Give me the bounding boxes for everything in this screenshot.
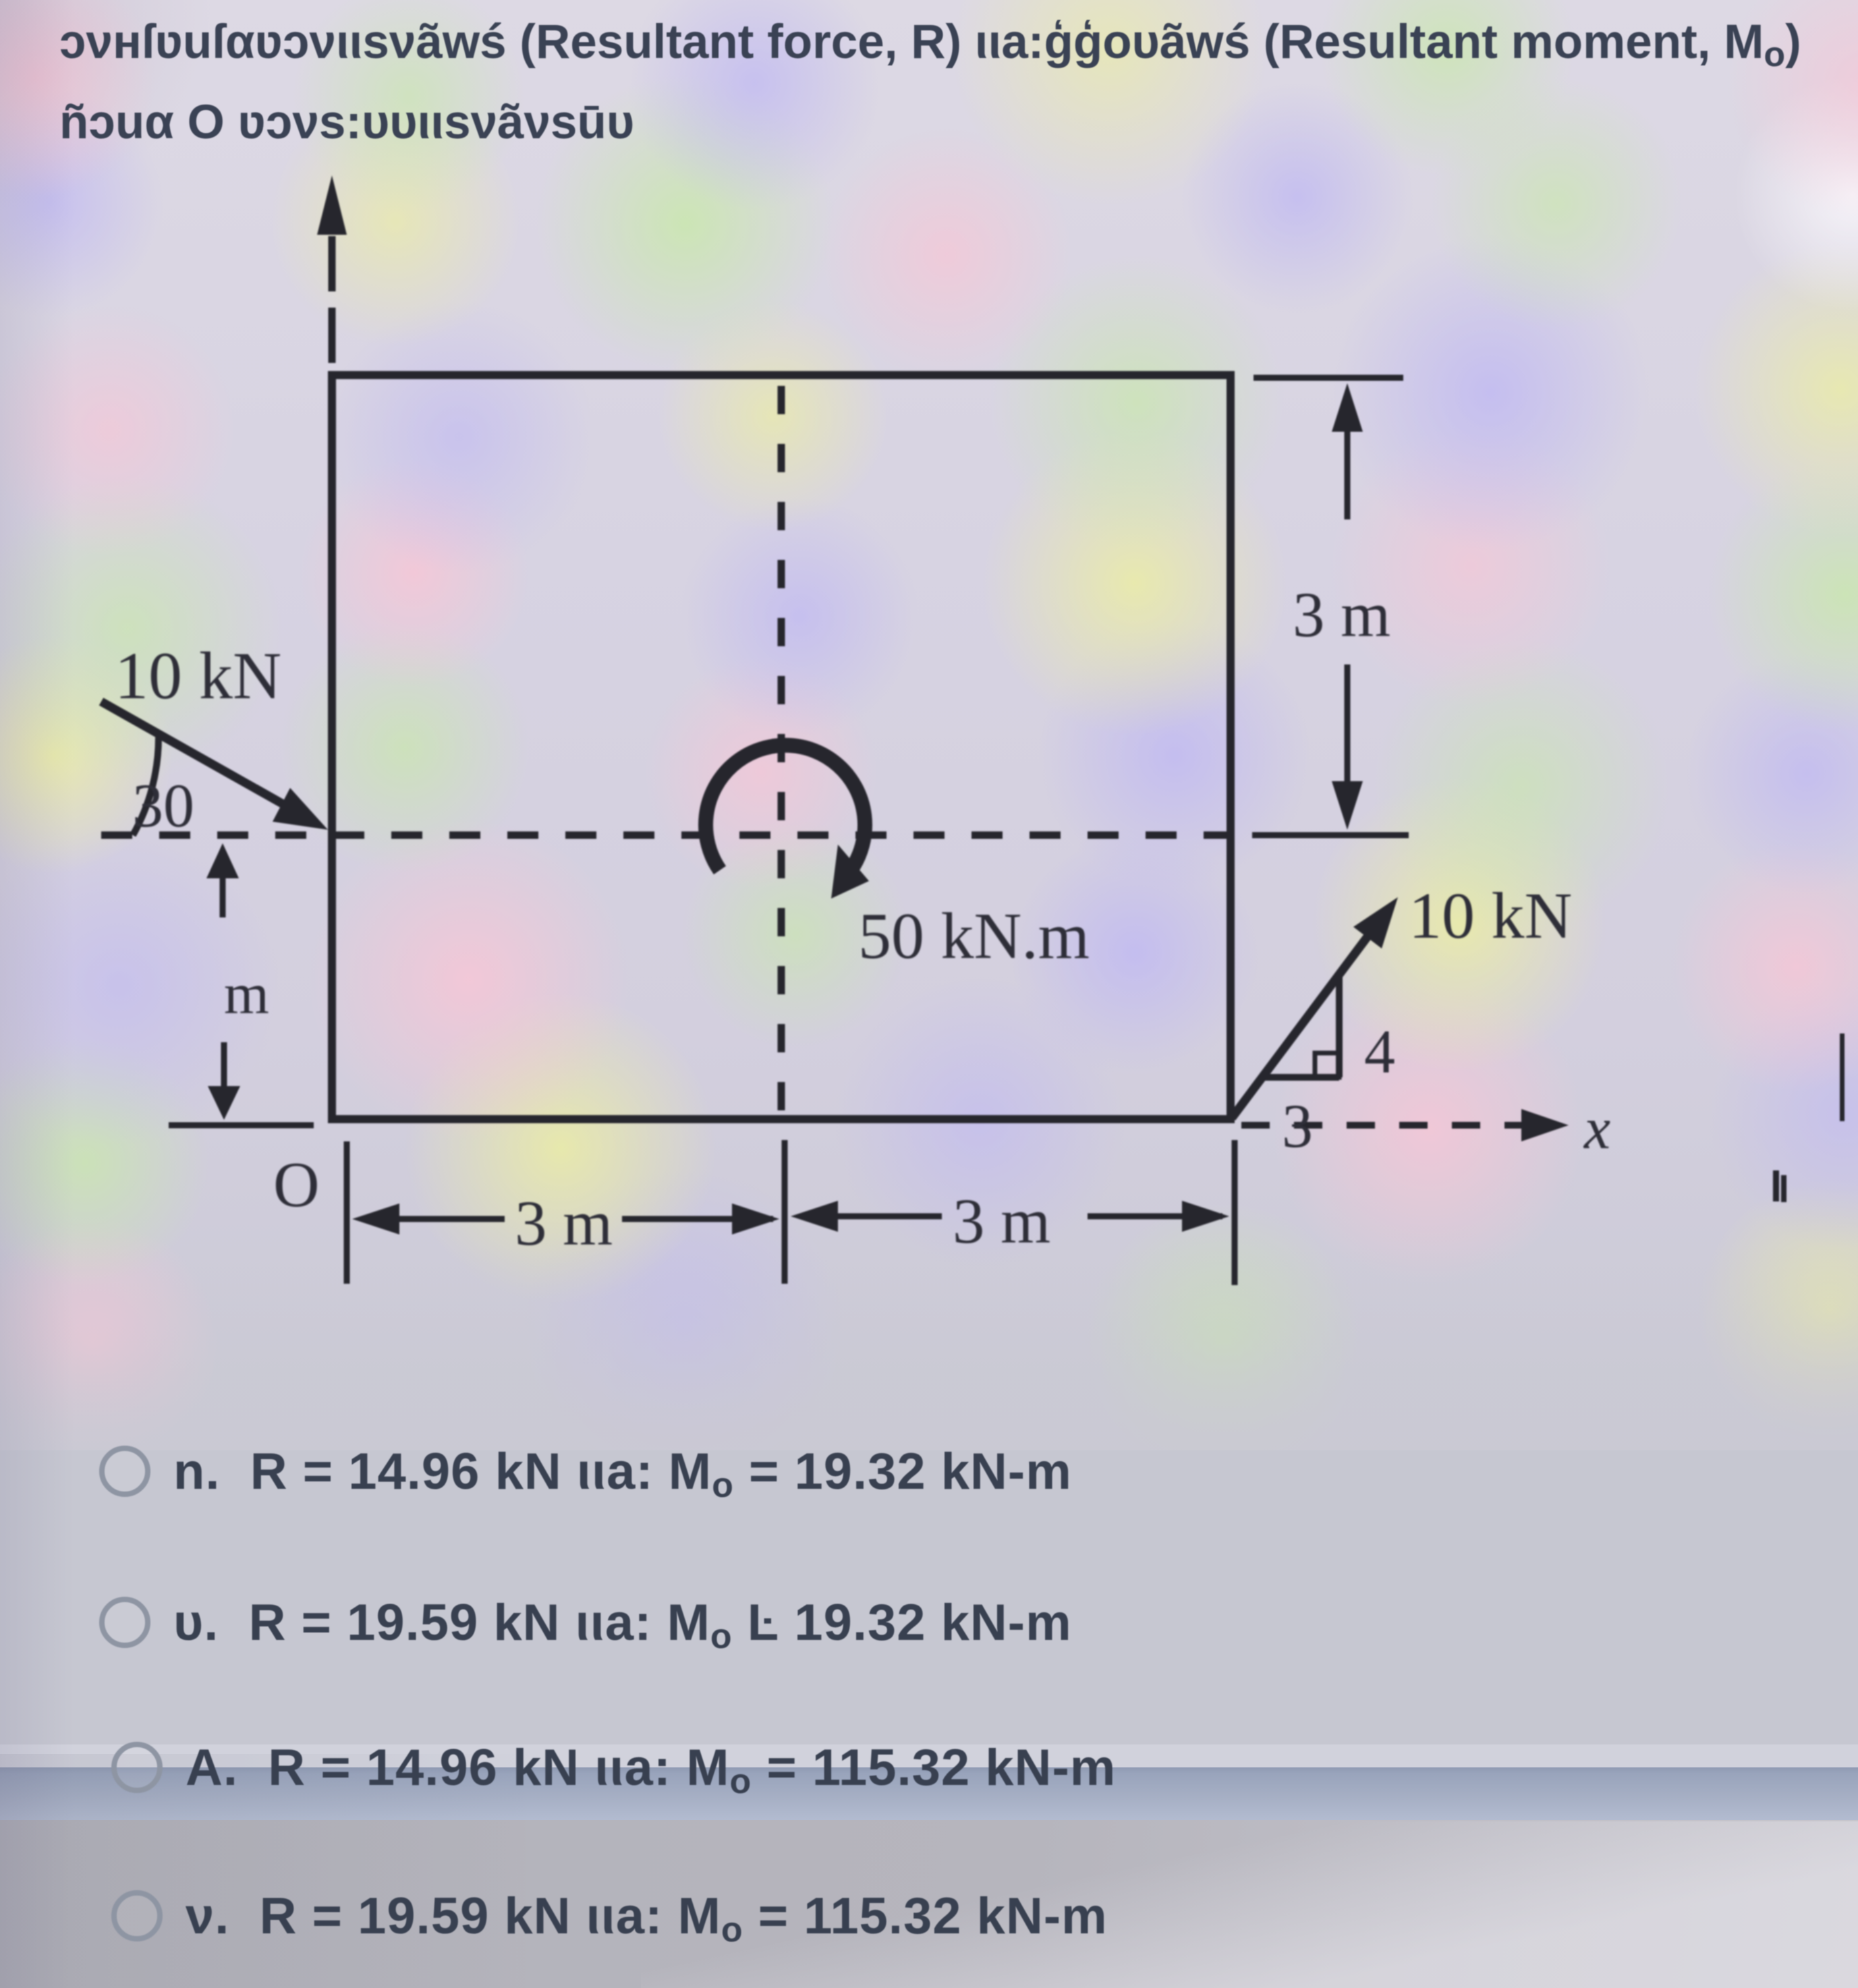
svg-text:10 kN: 10 kN	[1409, 880, 1572, 953]
svg-text:10 kN: 10 kN	[115, 638, 281, 713]
svg-text:3 m: 3 m	[1293, 579, 1390, 650]
svg-text:30: 30	[132, 771, 194, 840]
svg-text:3 m: 3 m	[515, 1187, 613, 1259]
svg-text:4: 4	[1364, 1017, 1395, 1086]
svg-text:50 kN.m: 50 kN.m	[858, 900, 1090, 973]
svg-text:m: m	[224, 961, 269, 1026]
svg-text:3: 3	[1282, 1091, 1313, 1160]
svg-text:3 m: 3 m	[953, 1185, 1050, 1257]
svg-text:O: O	[273, 1149, 320, 1220]
svg-text:x: x	[1583, 1096, 1610, 1162]
